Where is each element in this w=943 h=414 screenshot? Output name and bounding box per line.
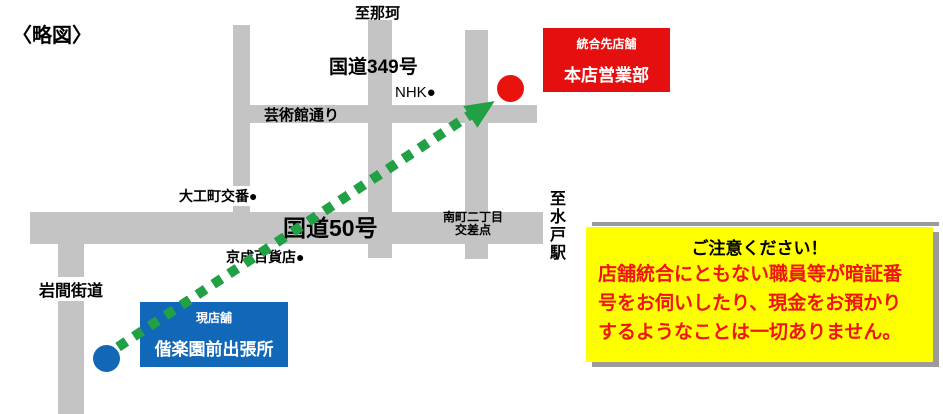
label-route-349: 国道349号 (329, 52, 418, 79)
destination-box-label: 統合先店舗 (576, 35, 636, 52)
label-to-naka: 至那珂 (355, 2, 400, 23)
notice-body-line: するようなことは一切ありません。 (598, 319, 921, 348)
page-title: 〈略図〉 (12, 19, 92, 48)
map-canvas: 〈略図〉 至那珂 国道349号 NHK● 芸術館通り 大工町交番● 国道50号 … (0, 0, 943, 414)
current-branch-label: 現店舗 (196, 309, 232, 326)
label-iwama-kaido: 岩間街道 (37, 277, 105, 301)
current-location-dot (93, 345, 120, 372)
notice-box: ご注意ください！ 店舗統合にともない職員等が暗証番 号をお伺いしたり、現金をお預… (586, 227, 933, 362)
destination-dot (497, 75, 524, 102)
road-iwama-kaido (58, 240, 84, 414)
label-to-mito-station: 至水戸駅 (543, 190, 567, 262)
label-minamimachi-intersection: 南町二丁目 交差点 (433, 211, 513, 237)
notice-title: ご注意ください！ (598, 234, 921, 259)
label-minamimachi-line2: 交差点 (433, 224, 513, 237)
label-nhk: NHK● (395, 84, 436, 101)
label-daikucho-koban: 大工町交番● (177, 186, 259, 206)
label-geijutsukan-street: 芸術館通り (264, 104, 339, 125)
current-branch-name: 偕楽園前出張所 (155, 335, 274, 360)
notice-body-line: 店舗統合にともない職員等が暗証番 (598, 261, 921, 290)
notice-shadow-line (592, 222, 939, 226)
destination-box: 統合先店舗 本店営業部 (543, 28, 670, 92)
notice-body-line: 号をお伺いしたり、現金をお預かり (598, 290, 921, 319)
destination-box-name: 本店営業部 (564, 61, 649, 86)
